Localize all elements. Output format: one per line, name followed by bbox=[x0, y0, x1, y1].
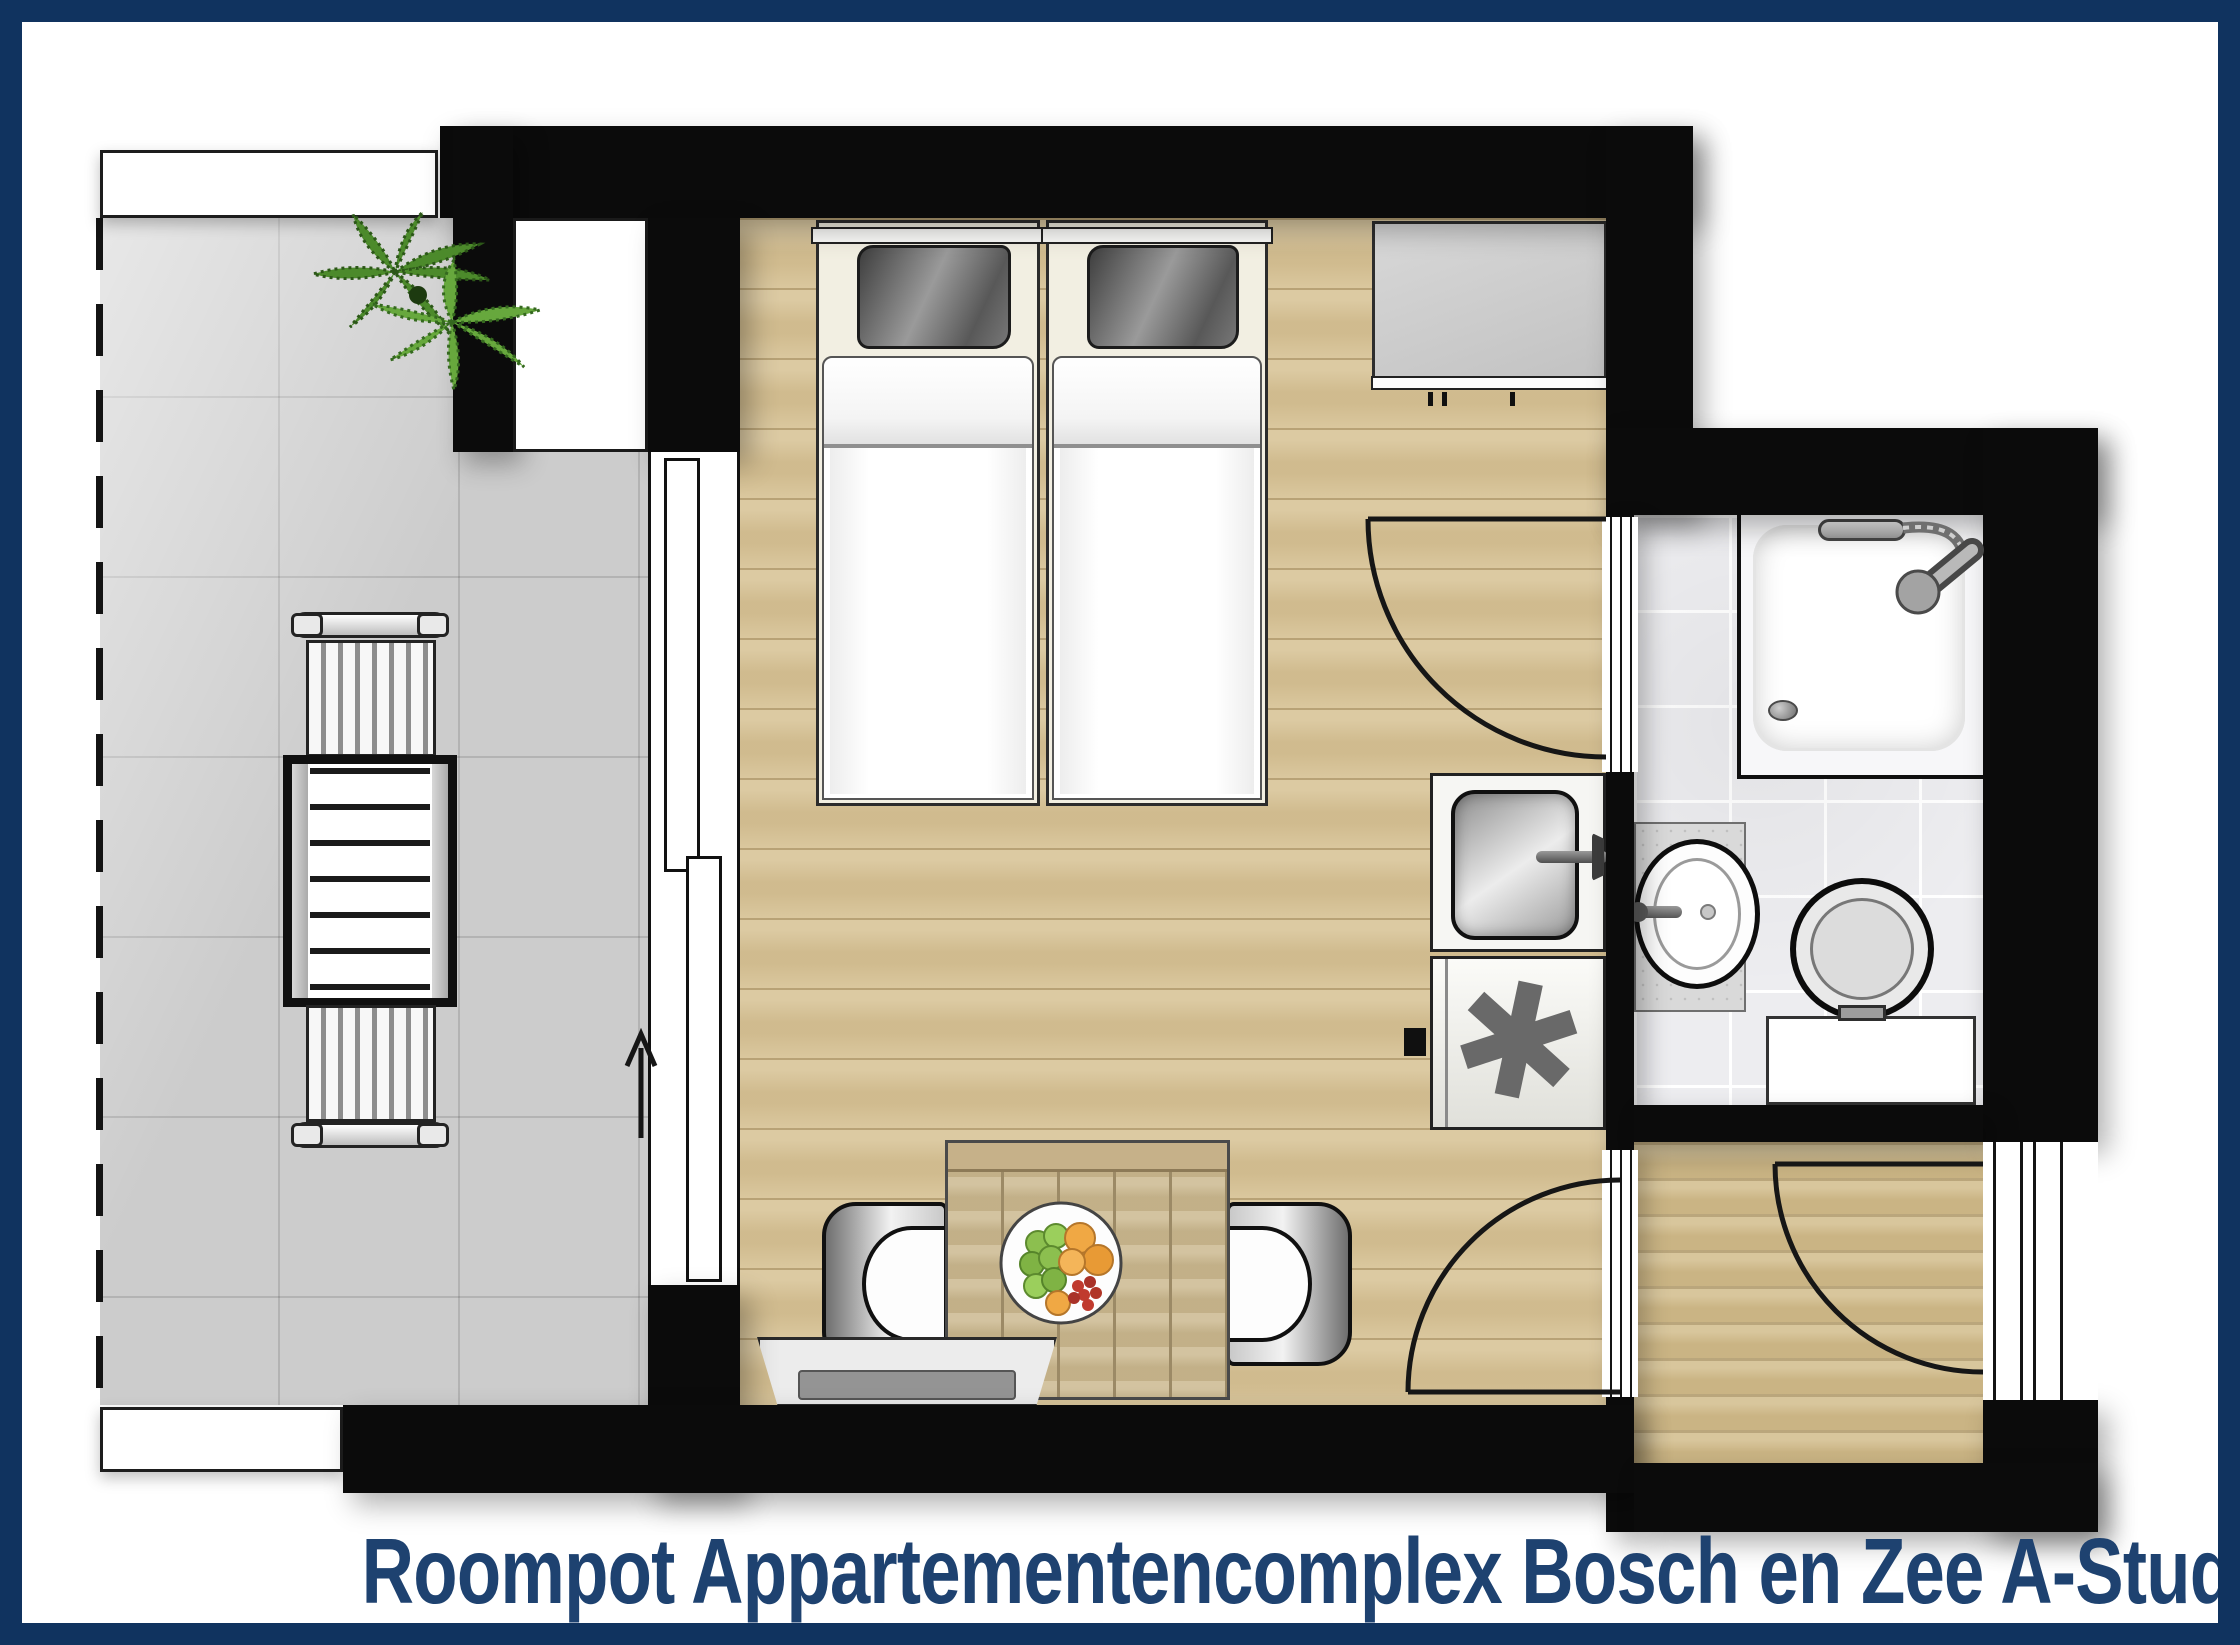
kitchen-faucet-handle bbox=[1592, 833, 1604, 881]
bed-right-headboard bbox=[1041, 227, 1273, 244]
wall-bathroom-bottom bbox=[1634, 1105, 1983, 1142]
dining-chair-right-seat bbox=[1226, 1226, 1312, 1342]
fruit-bowl bbox=[996, 1198, 1126, 1328]
bed-right-blanket bbox=[1052, 356, 1262, 800]
bed-left bbox=[816, 220, 1040, 806]
dining-chair-right bbox=[1226, 1202, 1352, 1366]
kitchen-sink bbox=[1451, 790, 1579, 940]
outdoor-chair-bottom-backrest bbox=[292, 1122, 448, 1148]
outdoor-chair-top-backrest bbox=[292, 612, 448, 638]
entrance-door-opening bbox=[1983, 1142, 2098, 1400]
cabinet-handle-icon bbox=[1428, 392, 1433, 406]
plant-icon bbox=[290, 210, 550, 395]
sliding-door-panel-2 bbox=[686, 856, 722, 1282]
sliding-door-panel-1 bbox=[664, 458, 700, 872]
balcony-railing-bottom bbox=[100, 1407, 343, 1472]
freezer-asterisk-icon: ✱ bbox=[1417, 943, 1618, 1143]
wall-outer-right bbox=[1983, 428, 2098, 1142]
shower-drain-icon bbox=[1768, 700, 1798, 721]
bed-left-pillow bbox=[857, 245, 1011, 349]
toilet-cistern bbox=[1766, 1016, 1976, 1105]
fridge-handle bbox=[1404, 1028, 1426, 1056]
bed-left-blanket bbox=[822, 356, 1034, 800]
radiator-shelf bbox=[757, 1337, 1057, 1407]
wardrobe-cabinet bbox=[1372, 221, 1607, 381]
cabinet-handle-icon bbox=[1510, 392, 1515, 406]
wall-bottom-main bbox=[343, 1405, 1634, 1493]
hall-door-opening bbox=[1602, 1150, 1638, 1397]
bed-right bbox=[1046, 220, 1268, 806]
outdoor-table bbox=[283, 755, 457, 1007]
toilet-bowl bbox=[1790, 878, 1934, 1020]
shower-enclosure bbox=[1737, 515, 1983, 779]
bathroom-door-opening bbox=[1602, 517, 1638, 772]
plan-caption-text: Roompot Appartementencomplex Bosch en Ze… bbox=[362, 1518, 2240, 1625]
balcony-edge-dashed-line bbox=[96, 218, 103, 1405]
wall-above-sliding-door bbox=[648, 218, 740, 452]
balcony-railing-top bbox=[100, 150, 438, 218]
cabinet-handle-icon bbox=[1442, 392, 1447, 406]
toilet-flush-button bbox=[1838, 1005, 1886, 1021]
radiator-core bbox=[798, 1370, 1016, 1400]
outdoor-chair-top bbox=[306, 640, 436, 757]
bed-left-headboard bbox=[811, 227, 1045, 244]
bed-right-pillow bbox=[1087, 245, 1239, 349]
wall-top bbox=[440, 126, 1693, 218]
fridge-unit: ✱ bbox=[1430, 956, 1606, 1130]
shower-rail bbox=[1818, 519, 1906, 541]
sliding-door bbox=[648, 452, 740, 1285]
washbasin-aerator-dot bbox=[1700, 904, 1716, 920]
outdoor-chair-bottom bbox=[306, 1005, 436, 1122]
dining-chair-left-seat bbox=[862, 1226, 948, 1342]
hall-floor bbox=[1634, 1142, 1983, 1463]
plan-caption: Roompot Appartementencomplex Bosch en Ze… bbox=[0, 1518, 2240, 1625]
